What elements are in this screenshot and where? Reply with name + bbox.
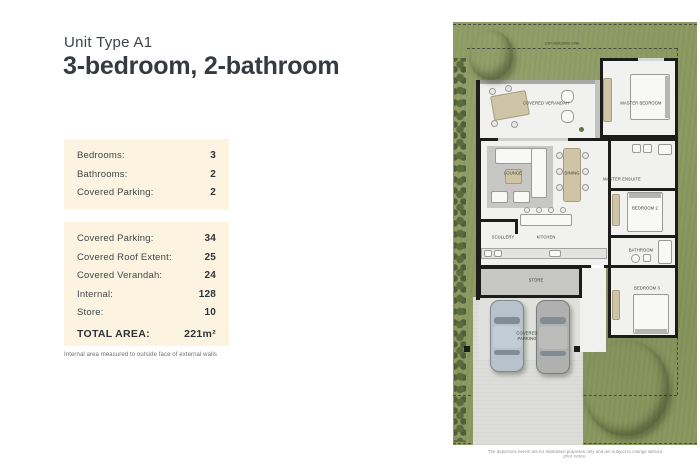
ottoman [491,191,508,203]
label-master-bedroom: MASTER BEDROOM [620,102,661,106]
label-covered-parking: COVERED PARKING [513,332,540,342]
sliding-door [498,138,568,141]
site-plan: 3.5m BUILDING LINE 3m BUILDING LINE [453,22,697,445]
bedroom3-headboard [635,329,667,334]
bar-stool [560,207,566,213]
appliance-icon [484,250,492,257]
area-label: Covered Roof Extent: [77,252,172,263]
ensuite-vanity [632,144,641,153]
toilet-icon [631,254,640,263]
unit-type-label: Unit Type A1 [64,34,152,51]
label-master-ensuite: MASTER ENSUITE [603,178,641,182]
label-store: STORE [529,279,544,283]
parking-column [574,346,580,352]
area-label: Store: [77,307,104,318]
area-value: 24 [204,270,216,281]
property-line-top [453,24,697,25]
label-bedroom2: BEDROOM 2 [632,207,658,211]
measurement-footnote: Internal area measured to outside face o… [64,352,217,358]
spec-label: Covered Parking: [77,187,154,198]
scullery-wall [478,219,518,222]
bush-icon [581,390,591,400]
building-line-top-label: 3.5m BUILDING LINE [544,42,579,46]
label-dining: DINING [564,172,579,176]
total-area-label: TOTAL AREA: [77,328,150,340]
area-value: 128 [199,289,216,300]
bush-icon [591,402,600,411]
sofa-chaise [531,148,547,198]
brochure-page: Unit Type A1 3-bedroom, 2-bathroom Bedro… [0,0,700,467]
label-scullery: SCULLERY [492,236,515,240]
verandah-chair [491,120,498,127]
spec-row-bathrooms: Bathrooms: 2 [77,169,216,180]
dining-chair [556,168,563,175]
kitchen-island [520,214,572,226]
area-label: Internal: [77,289,113,300]
area-label: Covered Parking: [77,233,154,244]
area-box: Covered Parking: 34 Covered Roof Extent:… [64,222,229,346]
basin-icon [643,254,651,262]
planter-icon [579,127,584,132]
hedge-left [454,58,466,442]
ottoman [513,191,530,203]
entry-walkway [580,268,606,352]
verandah-chair [511,121,518,128]
area-row-store: Store: 10 [77,307,216,318]
ensuite-wall [611,188,675,191]
bathroom-wall [611,265,675,268]
appliance-icon [494,250,502,257]
car-gray [536,300,570,374]
area-row-internal: Internal: 128 [77,289,216,300]
dining-chair [582,184,589,191]
area-value: 34 [204,233,216,244]
label-lounge: LOUNGE [504,172,522,176]
spec-row-bedrooms: Bedrooms: 3 [77,150,216,161]
bar-stool [536,207,542,213]
ensuite-vanity [643,144,652,153]
dining-chair [582,152,589,159]
bedroom2-headboard [629,193,661,198]
label-bedroom3: BEDROOM 3 [634,287,660,291]
area-row-covered-parking: Covered Parking: 34 [77,233,216,244]
bar-stool [548,207,554,213]
total-area-row: TOTAL AREA: 221m² [77,328,216,340]
spec-row-covered-parking: Covered Parking: 2 [77,187,216,198]
verandah-chair [505,85,512,92]
bathtub [658,240,672,264]
sink-icon [549,250,561,257]
dining-chair [556,152,563,159]
spec-value: 2 [210,187,216,198]
label-covered-verandah: COVERED VERANDAH [523,102,569,106]
spec-value: 3 [210,150,216,161]
master-headboard [665,76,670,118]
master-bed [630,74,670,120]
scullery-wall-stub [515,219,518,234]
plan-disclaimer: The depictions herein are for illustrati… [485,450,666,459]
area-row-covered-verandah: Covered Verandah: 24 [77,270,216,281]
total-area-value: 221m² [184,328,216,340]
spec-label: Bedrooms: [77,150,125,161]
master-wardrobe [603,78,612,122]
ensuite-shower [658,144,672,155]
verandah-roof-edge [478,80,612,84]
bedroom2-wardrobe [612,194,620,226]
verandah-lounge-chair [561,110,574,123]
area-label: Covered Verandah: [77,270,162,281]
area-value: 10 [204,307,216,318]
bedroom2-bed [627,192,663,232]
dining-chair [556,184,563,191]
label-bathroom: BATHROOM [629,249,653,253]
area-row-covered-roof: Covered Roof Extent: 25 [77,252,216,263]
tree-blob-icon [497,42,515,60]
dining-chair [582,168,589,175]
spec-value: 2 [210,169,216,180]
spec-label: Bathrooms: [77,169,128,180]
page-title: 3-bedroom, 2-bathroom [63,52,339,81]
area-value: 25 [204,252,216,263]
spec-box: Bedrooms: 3 Bathrooms: 2 Covered Parking… [64,139,229,209]
master-window [638,58,664,61]
bar-stool [524,207,530,213]
verandah-chair [489,88,496,95]
label-kitchen: KITCHEN [537,236,556,240]
parking-column [464,346,470,352]
bedroom3-wardrobe [612,290,620,320]
front-door-gap [591,265,604,268]
bedroom3-bed [633,294,669,334]
bedroom2-wall [611,235,675,238]
